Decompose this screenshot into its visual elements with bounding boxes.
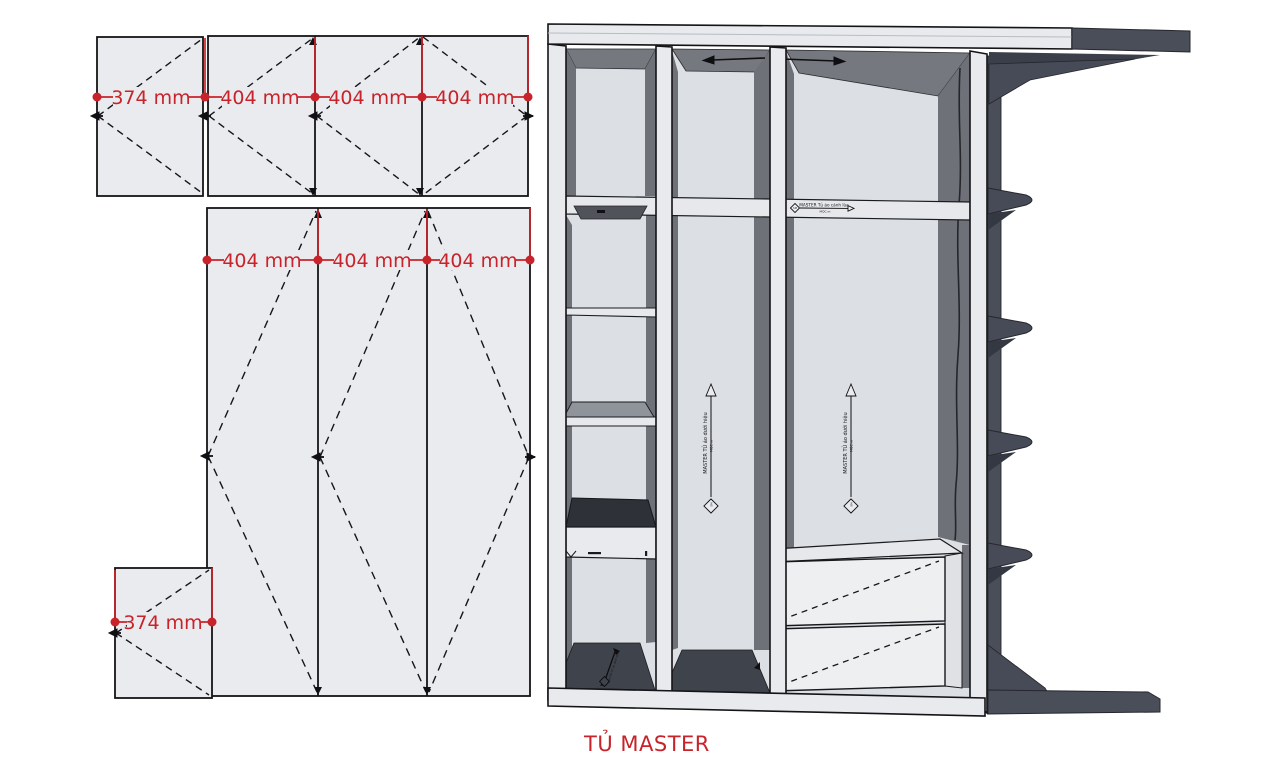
drawer-mark-tick <box>645 551 647 556</box>
dim-label-404: 404 mm <box>438 250 517 272</box>
ceiling-middle <box>672 49 770 72</box>
partition-1 <box>656 46 672 700</box>
rail-label-text: MASTER Tủ áo cánh lùa <box>799 203 849 208</box>
drawer-unit-side <box>945 553 962 688</box>
partition-2 <box>770 47 786 700</box>
dim-label-374: 374 mm <box>111 87 190 109</box>
side-panel-edge <box>988 56 1001 710</box>
right-stile <box>970 51 987 713</box>
logo-text: SM <box>850 502 854 507</box>
dim-label-404: 404 mm <box>328 87 407 109</box>
corner-shelf <box>988 430 1032 456</box>
corner-shelf <box>988 543 1032 569</box>
shelf-front <box>566 417 656 426</box>
side-bottom-bracket <box>988 645 1048 695</box>
dim-label-404: 404 mm <box>435 87 514 109</box>
hang-sublabel-text: MỘC m <box>709 440 714 452</box>
rail-recess <box>574 206 647 219</box>
rail-recess-mark <box>597 210 605 213</box>
drawing-canvas: 374 mm 404 mm 404 mm 404 mm <box>0 0 1275 771</box>
side-shelf-top <box>1072 28 1190 52</box>
panel-row-middle: 404 mm 404 mm 404 mm <box>201 208 535 696</box>
hang-label-text: MASTER TỦ áo dưới hiệu <box>841 412 849 473</box>
shelf-dark-block <box>566 498 656 527</box>
panel-group-404-top <box>208 36 528 196</box>
drawing-title: TỦ MASTER <box>583 729 710 756</box>
floor-middle-column <box>664 650 770 693</box>
drawer-mark-dash <box>588 552 601 554</box>
side-base-rail <box>988 690 1160 714</box>
panel-bottom-small: 374 mm <box>109 568 217 698</box>
shelf-front <box>566 308 656 317</box>
drawer-face-left <box>566 527 656 559</box>
dim-label-404: 404 mm <box>332 250 411 272</box>
wardrobe-3d-view: MASTER TỦ áo dưới hiệu SM MASTER T <box>548 24 1190 716</box>
drawer-front-1 <box>774 557 945 626</box>
corner-shelf <box>988 316 1032 342</box>
panel-374-top <box>97 37 203 196</box>
logo-text: SM <box>710 502 714 507</box>
dim-label-404: 404 mm <box>220 87 299 109</box>
corner-shelf <box>988 188 1032 214</box>
drawer-unit <box>773 539 962 691</box>
rail-sublabel-text: MỘC m <box>820 209 831 214</box>
hang-label-text: MASTER TỦ áo dưới hiệu <box>701 412 709 473</box>
wardrobe-technical-drawing: 374 mm 404 mm 404 mm 404 mm <box>0 0 1275 771</box>
logo-text: SM <box>793 206 797 210</box>
panel-group-404-tall <box>207 208 530 696</box>
ceiling-left <box>566 49 656 69</box>
panel-row-top: 374 mm 404 mm 404 mm 404 mm <box>91 36 533 196</box>
flat-panel-layout: 374 mm 404 mm 404 mm 404 mm <box>91 36 535 698</box>
hang-sublabel-text: MỘC m <box>849 440 854 452</box>
shelf-top-surface <box>564 402 654 417</box>
interior-right-wall <box>938 53 970 545</box>
side-shelf-bracket <box>989 59 1135 104</box>
dim-label-404: 404 mm <box>222 250 301 272</box>
dim-label-374: 374 mm <box>123 612 202 634</box>
exterior-side-shelves <box>988 28 1190 714</box>
left-stile <box>548 44 566 702</box>
